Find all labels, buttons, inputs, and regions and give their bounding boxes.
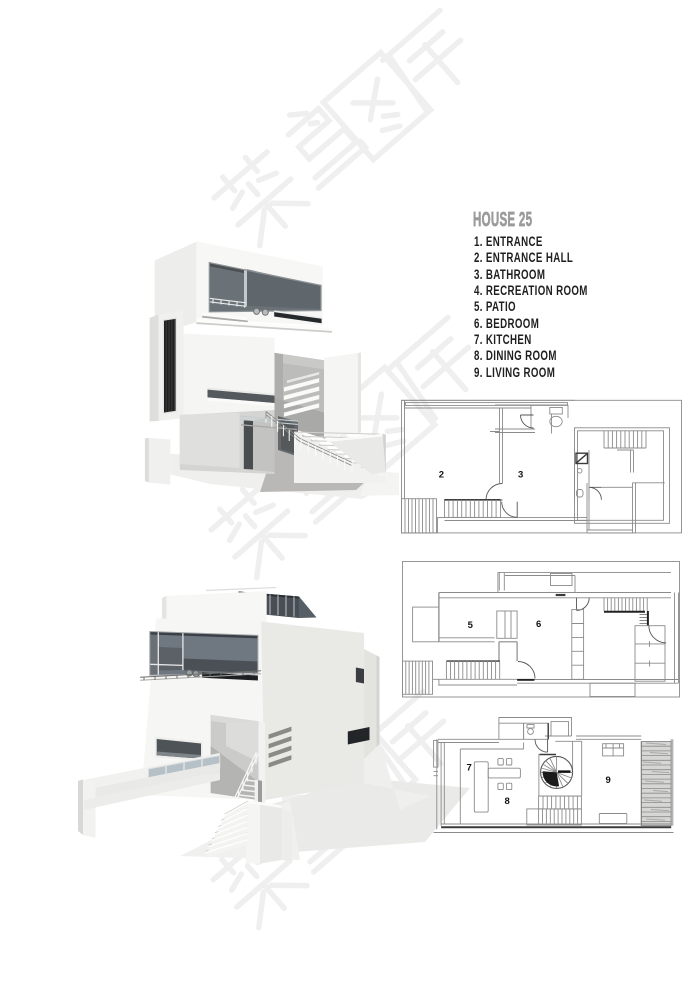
svg-text:7: 7	[467, 763, 472, 774]
svg-text:8: 8	[505, 796, 510, 807]
svg-text:9: 9	[606, 775, 611, 786]
